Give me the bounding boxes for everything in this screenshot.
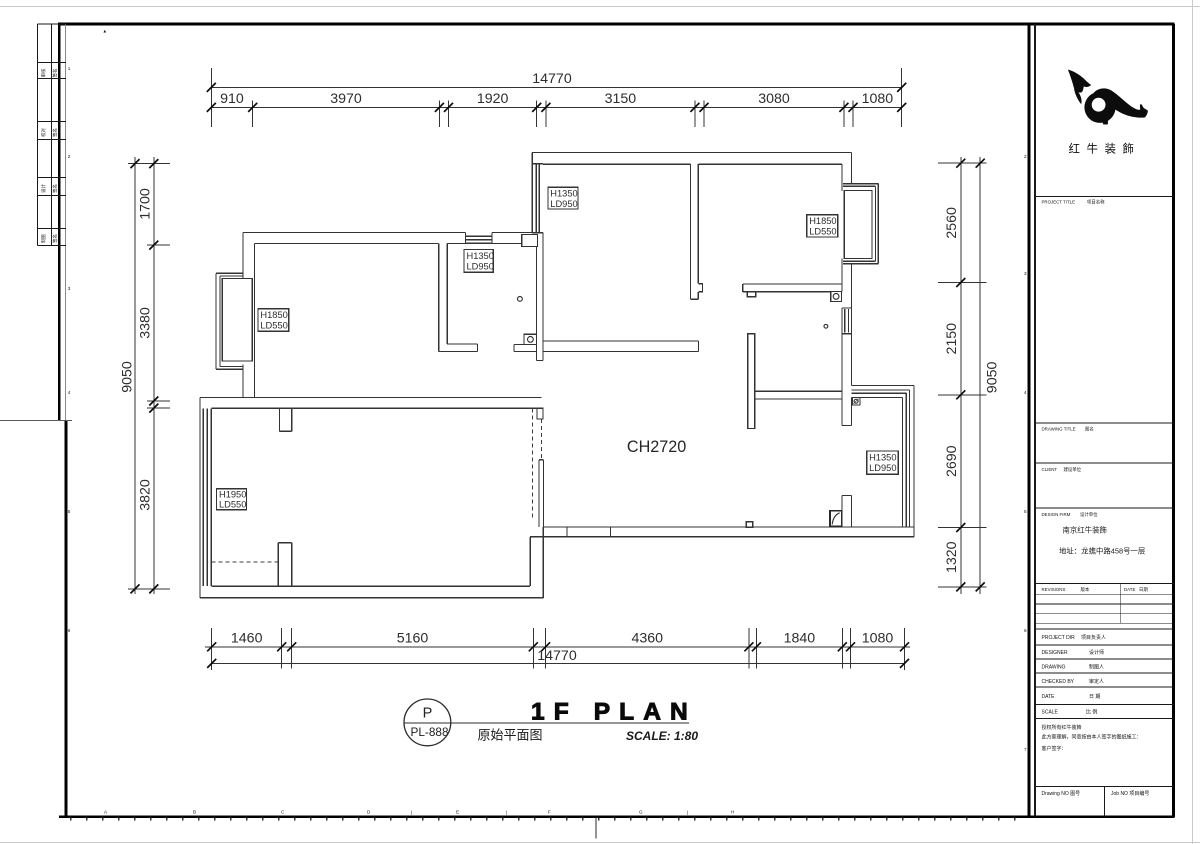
svg-text:F: F <box>548 810 551 815</box>
svg-text:PROJECT TITLE: PROJECT TITLE <box>1042 200 1076 205</box>
svg-text:CHECKED BY: CHECKED BY <box>1042 679 1075 685</box>
svg-text:建设单位: 建设单位 <box>1064 466 1082 473</box>
svg-text:3380: 3380 <box>137 307 153 339</box>
svg-text:红牛装飾: 红牛装飾 <box>1069 142 1141 156</box>
svg-text:2: 2 <box>1024 154 1027 159</box>
svg-text:版本: 版本 <box>1081 586 1090 593</box>
svg-text:设计单位: 设计单位 <box>1080 511 1098 518</box>
svg-text:REVISIONS: REVISIONS <box>1042 587 1066 592</box>
svg-text:Drawing NO 图号: Drawing NO 图号 <box>1042 791 1081 797</box>
svg-text:E: E <box>456 810 459 815</box>
svg-text:DRAWING TITLE: DRAWING TITLE <box>1042 427 1076 432</box>
svg-text:CLIENT: CLIENT <box>1042 467 1058 472</box>
svg-text:1840: 1840 <box>784 631 816 647</box>
svg-text:G: G <box>639 810 643 815</box>
svg-text:签名: 签名 <box>52 184 59 193</box>
svg-text:LD950: LD950 <box>869 463 896 473</box>
svg-text:DRAWING: DRAWING <box>1042 665 1066 671</box>
svg-text:DESIGN FIRM: DESIGN FIRM <box>1042 512 1071 517</box>
svg-text:LD550: LD550 <box>260 321 287 331</box>
svg-text:3970: 3970 <box>330 91 362 107</box>
svg-text:图名: 图名 <box>1085 426 1094 433</box>
svg-text:LD950: LD950 <box>467 262 494 272</box>
svg-text:DATE: DATE <box>1042 694 1056 700</box>
svg-text:1080: 1080 <box>862 91 894 107</box>
svg-text:CH2720: CH2720 <box>627 438 686 456</box>
svg-text:SCALE: 1:80: SCALE: 1:80 <box>626 729 698 743</box>
svg-text:DATE: DATE <box>1124 587 1135 592</box>
svg-text:1920: 1920 <box>477 91 509 107</box>
svg-text:910: 910 <box>220 91 244 107</box>
svg-text:2: 2 <box>68 154 71 159</box>
svg-text:9050: 9050 <box>985 362 1001 394</box>
svg-text:|: | <box>506 810 507 815</box>
svg-text:7: 7 <box>1024 747 1027 752</box>
svg-text:B: B <box>193 810 196 815</box>
svg-text:14770: 14770 <box>537 648 577 664</box>
svg-text:LD550: LD550 <box>219 499 246 509</box>
svg-text:2150: 2150 <box>944 323 960 355</box>
svg-text:H1350: H1350 <box>869 452 896 462</box>
svg-text:H: H <box>731 810 734 815</box>
svg-text:审定人: 审定人 <box>1089 678 1104 685</box>
svg-text:1460: 1460 <box>231 631 263 647</box>
svg-text:3080: 3080 <box>758 91 790 107</box>
svg-text:9050: 9050 <box>119 361 135 393</box>
svg-text:Job NO 项目编号: Job NO 项目编号 <box>1111 790 1149 797</box>
svg-text:校对: 校对 <box>40 128 47 137</box>
svg-text:日 期: 日 期 <box>1089 694 1100 700</box>
svg-text:PL-888: PL-888 <box>410 725 448 739</box>
svg-text:授权所有红牛装飾: 授权所有红牛装飾 <box>1042 724 1082 731</box>
svg-text:3820: 3820 <box>137 479 153 511</box>
svg-text:PROJECT DIR: PROJECT DIR <box>1042 635 1076 641</box>
svg-text:此方案理解，同意按由本人签字的图纸施工：: 此方案理解，同意按由本人签字的图纸施工： <box>1042 734 1142 741</box>
svg-text:签名: 签名 <box>52 234 59 243</box>
svg-text:H1850: H1850 <box>260 310 287 320</box>
svg-text:SCALE: SCALE <box>1042 710 1059 716</box>
svg-text:LD950: LD950 <box>550 199 577 209</box>
svg-text:制图: 制图 <box>40 234 47 243</box>
svg-text:5160: 5160 <box>397 631 429 647</box>
svg-text:▲: ▲ <box>103 29 108 34</box>
svg-text:地址：龙蟭中路458号一层: 地址：龙蟭中路458号一层 <box>1059 547 1145 556</box>
svg-text:项目名称: 项目名称 <box>1087 199 1105 206</box>
svg-text:1F PLAN: 1F PLAN <box>531 699 697 726</box>
svg-text:H1350: H1350 <box>467 251 494 261</box>
svg-text:H1850: H1850 <box>809 216 836 226</box>
svg-text:H1950: H1950 <box>219 489 246 499</box>
svg-text:3: 3 <box>1024 271 1027 276</box>
svg-text:签名: 签名 <box>52 69 59 78</box>
svg-text:1320: 1320 <box>944 541 960 573</box>
svg-text:4360: 4360 <box>632 631 664 647</box>
svg-text:6: 6 <box>68 628 71 633</box>
svg-text:1700: 1700 <box>137 188 153 220</box>
svg-text:3: 3 <box>68 286 71 291</box>
svg-text:DESIGNER: DESIGNER <box>1042 650 1069 656</box>
svg-text:项目负责人: 项目负责人 <box>1081 634 1106 641</box>
svg-text:P: P <box>423 706 433 722</box>
svg-text:1: 1 <box>68 66 71 71</box>
svg-text:2690: 2690 <box>944 445 960 477</box>
svg-text:签名: 签名 <box>52 128 59 137</box>
svg-text:2560: 2560 <box>944 207 960 239</box>
svg-text:设计师: 设计师 <box>1089 649 1104 656</box>
svg-text:5: 5 <box>1024 509 1027 514</box>
svg-text:设计: 设计 <box>40 184 47 193</box>
svg-text:6: 6 <box>1024 628 1027 633</box>
svg-text:LD550: LD550 <box>809 227 836 237</box>
svg-text:南京红牛装飾: 南京红牛装飾 <box>1063 526 1107 535</box>
svg-text:制图人: 制图人 <box>1089 664 1104 671</box>
svg-text:H1350: H1350 <box>550 188 577 198</box>
svg-text:比 例: 比 例 <box>1086 709 1097 716</box>
svg-text:|: | <box>687 810 688 815</box>
svg-text:4: 4 <box>1024 390 1027 395</box>
svg-text:原始平面图: 原始平面图 <box>478 728 543 743</box>
svg-text:客户签字：: 客户签字： <box>1042 745 1067 752</box>
svg-text:1080: 1080 <box>862 631 894 647</box>
svg-text:14770: 14770 <box>532 71 572 87</box>
svg-text:审核: 审核 <box>40 68 47 77</box>
svg-text:3150: 3150 <box>605 91 637 107</box>
svg-text:5: 5 <box>68 509 71 514</box>
svg-text:|: | <box>411 810 412 815</box>
svg-text:4: 4 <box>68 390 71 395</box>
